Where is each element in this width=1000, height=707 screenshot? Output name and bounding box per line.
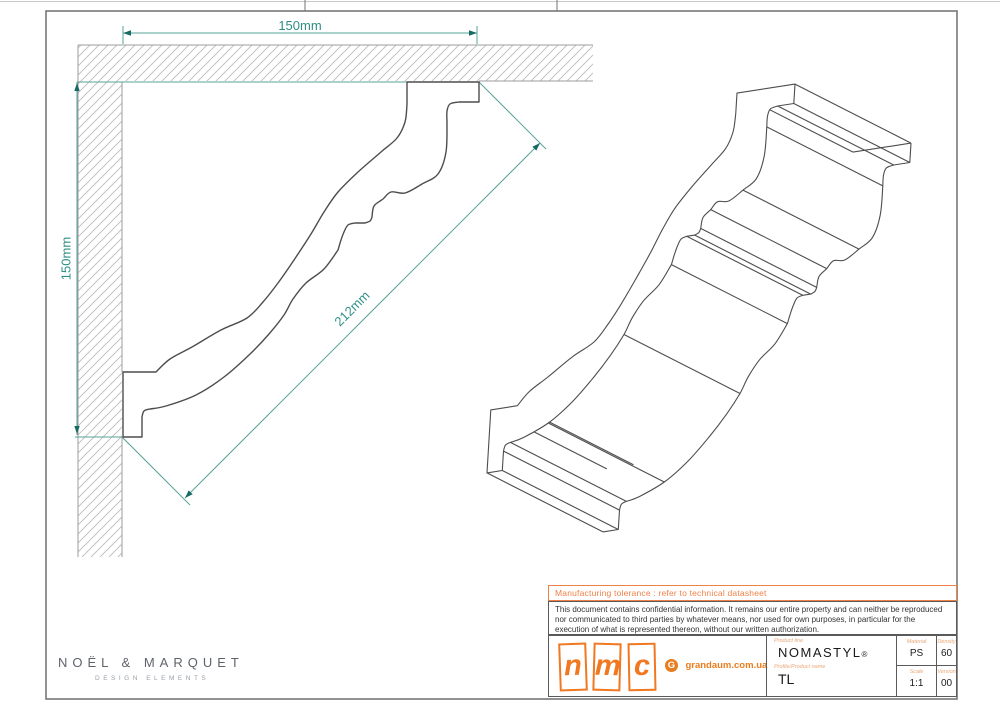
material-label: Material (897, 639, 936, 645)
version-label: Version (937, 669, 956, 675)
dimension-label-side: 150mm (59, 232, 74, 286)
manufacturer-logo-cell: n m c G grandaum.com.ua (549, 636, 766, 696)
profile-name-value: TL (778, 671, 794, 687)
spec-scale: Scale 1:1 (897, 665, 936, 697)
dimension-label-top: 150mm (270, 18, 330, 33)
spec-material: Material PS (897, 636, 936, 665)
title-block-bottom-row: n m c G grandaum.com.ua Product line NOM… (548, 635, 957, 697)
product-line-label: Product line (774, 638, 803, 644)
scale-value: 1:1 (897, 678, 936, 689)
product-line-value: NOMASTYL® (778, 645, 867, 660)
datasheet-page: 150mm 150mm 212mm Manufacturing toleranc… (0, 0, 1000, 707)
nmc-logo-letter-m: m (593, 643, 622, 692)
scale-label: Scale (897, 669, 936, 675)
nmc-logo-letter-c: c (627, 643, 656, 692)
registered-mark: ® (862, 650, 868, 659)
version-value: 00 (937, 678, 956, 689)
nmc-logo-letter-n: n (558, 643, 588, 692)
brand-tagline: DESIGN ELEMENTS (95, 675, 244, 682)
density-value: 60 (937, 648, 956, 659)
nmc-logo: n m c (559, 643, 658, 691)
profile-name-label: Profile/Product name (774, 664, 825, 670)
specs-grid: Material PS Density 60 Scale 1:1 Version… (896, 636, 956, 696)
product-cell: Product line NOMASTYL® Profile/Product n… (766, 636, 896, 696)
dimension-diagonal (122, 82, 546, 505)
brand-name: NOËL & MARQUET (58, 655, 244, 670)
material-value: PS (897, 648, 936, 659)
partner-site-link[interactable]: grandaum.com.ua (685, 660, 767, 671)
partner-logo[interactable]: G grandaum.com.ua (665, 657, 767, 675)
confidential-box: This document contains confidential info… (548, 601, 957, 635)
tolerance-note-text: Manufacturing tolerance : refer to techn… (549, 588, 767, 598)
partner-logo-icon: G (665, 659, 678, 672)
confidential-text: This document contains confidential info… (549, 602, 956, 635)
spec-density: Density 60 (936, 636, 956, 665)
profile-cross-section (123, 82, 479, 437)
density-label: Density (937, 639, 956, 645)
brand-footer: NOËL & MARQUET DESIGN ELEMENTS (58, 655, 244, 682)
tolerance-note-box: Manufacturing tolerance : refer to techn… (548, 585, 957, 601)
wall-ceiling-hatch (78, 45, 593, 557)
profile-3d-view (487, 84, 911, 532)
spec-version: Version 00 (936, 665, 956, 697)
